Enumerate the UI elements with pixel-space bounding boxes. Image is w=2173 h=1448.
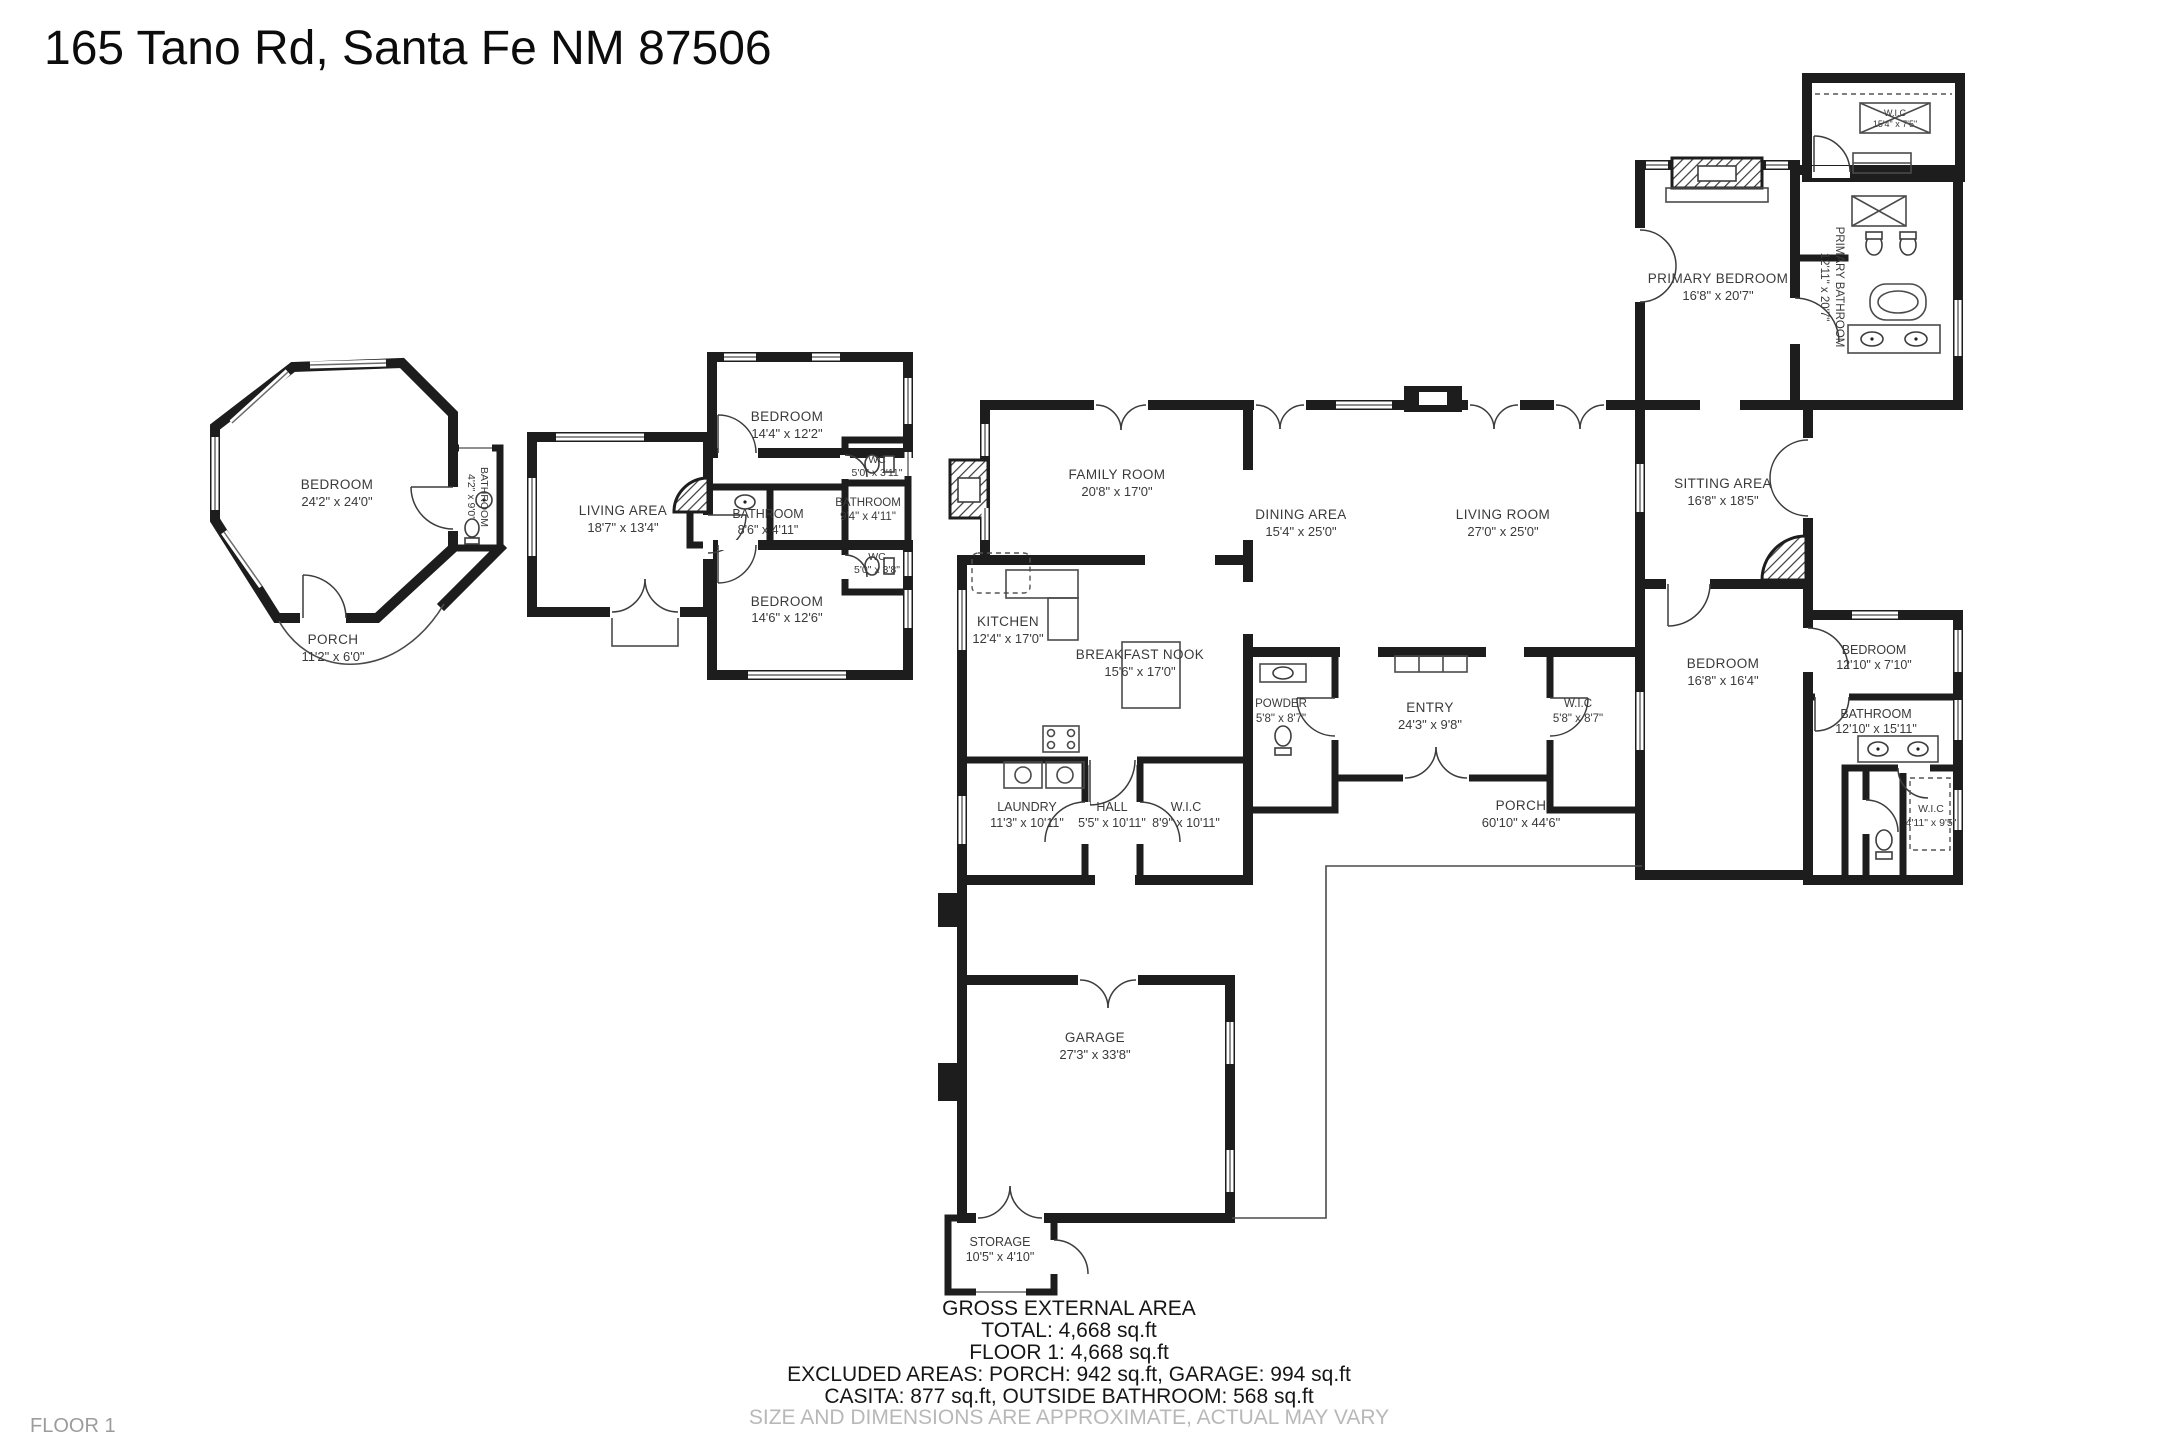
room-label-family-room: FAMILY ROOM xyxy=(1069,467,1166,482)
room-label-bedroom-right-big: BEDROOM xyxy=(1687,656,1760,671)
room-label-casita-bathroom: BATHROOM xyxy=(478,467,490,527)
sofa-icon xyxy=(1006,570,1078,640)
room-label-entry: ENTRY xyxy=(1406,700,1454,715)
room-dims-casita2-bathroom2: 9'4" x 4'11" xyxy=(840,511,896,523)
room-label-kitchen: KITCHEN xyxy=(977,614,1039,629)
bathtub-icon xyxy=(1870,284,1926,320)
room-dims-casita2-bedroom-top: 14'4" x 12'2" xyxy=(751,426,823,441)
room-label-bedroom-right-small: BEDROOM xyxy=(1842,643,1907,657)
room-dims-wc-top: 5'0" x 3'11" xyxy=(852,467,903,479)
vanity-sink-icon xyxy=(1260,664,1306,682)
room-dims-kitchen: 12'4" x 17'0" xyxy=(972,631,1044,646)
toilet-icon xyxy=(1876,830,1892,859)
room-dims-casita-bathroom: 4'2" x 9'0" xyxy=(465,474,477,520)
summary-casita: CASITA: 877 sq.ft, OUTSIDE BATHROOM: 568… xyxy=(824,1385,1314,1408)
octagon-casita: BEDROOM 24'2" x 24'0" PORCH 11'2" x 6'0"… xyxy=(215,363,500,664)
room-dims-wc-bottom: 5'0" x 3'8" xyxy=(854,564,900,576)
kiva-fireplace-icon xyxy=(1762,536,1806,580)
toilet-icon xyxy=(1866,232,1882,255)
room-dims-sitting-area: 16'8" x 18'5" xyxy=(1687,493,1759,508)
room-label-casita2-bathroom: BATHROOM xyxy=(732,507,803,521)
porch-outline xyxy=(1232,866,1642,1218)
room-label-breakfast-nook: BREAKFAST NOOK xyxy=(1076,647,1204,662)
room-label-casita-bedroom: BEDROOM xyxy=(301,477,374,492)
summary-excluded: EXCLUDED AREAS: PORCH: 942 sq.ft, GARAGE… xyxy=(787,1363,1351,1386)
room-label-casita-porch: PORCH xyxy=(308,632,359,647)
room-label-casita2-bedroom-top: BEDROOM xyxy=(751,409,824,424)
room-dims-family-room: 20'8" x 17'0" xyxy=(1081,484,1153,499)
room-label-wc-bottom: WC xyxy=(868,551,886,563)
washer-dryer-icon xyxy=(1004,762,1084,788)
floor-plan: 165 Tano Rd, Santa Fe NM 87506 BEDROOM 2… xyxy=(0,0,2173,1448)
room-dims-hall: 5'5" x 10'11" xyxy=(1078,816,1146,830)
room-label-primary-bathroom: PRIMARY BATHROOM xyxy=(1833,227,1845,348)
kiva-fireplace-icon xyxy=(674,478,708,512)
room-label-dining-area: DINING AREA xyxy=(1255,507,1346,522)
page-title: 165 Tano Rd, Santa Fe NM 87506 xyxy=(44,22,772,75)
main-house: FAMILY ROOM 20'8" x 17'0" DINING AREA 15… xyxy=(938,78,1960,1292)
room-label-wic-entry: W.I.C xyxy=(1564,698,1592,710)
room-label-porch-main: PORCH xyxy=(1496,798,1547,813)
toilet-icon xyxy=(465,519,479,544)
bidet-icon xyxy=(1900,232,1916,255)
room-label-living-area: LIVING AREA xyxy=(579,503,667,518)
room-label-hall: HALL xyxy=(1096,800,1127,814)
toilet-icon xyxy=(1275,726,1291,755)
room-dims-casita2-bedroom-bottom: 14'6" x 12'6" xyxy=(751,610,823,625)
room-dims-entry: 24'3" x 9'8" xyxy=(1398,717,1462,732)
shower-icon xyxy=(1852,196,1906,226)
floor-plan-page: 165 Tano Rd, Santa Fe NM 87506 BEDROOM 2… xyxy=(0,0,2173,1448)
room-label-casita2-bathroom2: BATHROOM xyxy=(835,497,901,509)
room-dims-wic-top: 15'4" x 7'5" xyxy=(1873,119,1917,129)
room-label-garage: GARAGE xyxy=(1065,1030,1125,1045)
room-label-wc-top: WC xyxy=(868,454,886,466)
room-dims-dining-area: 15'4" x 25'0" xyxy=(1265,524,1337,539)
room-dims-living-area: 18'7" x 13'4" xyxy=(587,520,659,535)
room-dims-living-room: 27'0" x 25'0" xyxy=(1467,524,1539,539)
room-label-wic-right: W.I.C xyxy=(1918,803,1944,815)
room-label-primary-bedroom: PRIMARY BEDROOM xyxy=(1648,271,1789,286)
room-dims-powder: 5'8" x 8'7" xyxy=(1256,713,1306,725)
floor-label: FLOOR 1 xyxy=(30,1415,116,1437)
room-label-wic-top: W.I.C xyxy=(1884,108,1906,118)
room-dims-bedroom-right-small: 12'10" x 7'10" xyxy=(1836,658,1912,672)
room-label-wic-hall: W.I.C xyxy=(1171,800,1202,814)
room-dims-primary-bedroom: 16'8" x 20'7" xyxy=(1682,288,1754,303)
console-table-icon xyxy=(1395,656,1467,672)
double-vanity-icon xyxy=(1858,736,1938,762)
room-label-storage: STORAGE xyxy=(970,1235,1031,1249)
summary-total: TOTAL: 4,668 sq.ft xyxy=(981,1319,1157,1342)
room-dims-laundry: 11'3" x 10'11" xyxy=(990,816,1064,830)
room-label-bathroom-right: BATHROOM xyxy=(1840,707,1911,721)
room-label-living-room: LIVING ROOM xyxy=(1456,507,1550,522)
summary-heading: GROSS EXTERNAL AREA xyxy=(942,1297,1196,1320)
summary-floor1: FLOOR 1: 4,668 sq.ft xyxy=(969,1341,1169,1364)
room-label-sitting-area: SITTING AREA xyxy=(1674,476,1772,491)
room-dims-casita-bedroom: 24'2" x 24'0" xyxy=(301,494,373,509)
room-dims-primary-bathroom: 12'11" x 20'7" xyxy=(1818,253,1830,322)
fireplace-icon xyxy=(1404,386,1462,412)
room-dims-storage: 10'5" x 4'10" xyxy=(966,1250,1035,1264)
room-dims-casita-porch: 11'2" x 6'0" xyxy=(301,649,364,664)
room-dims-wic-hall: 8'9" x 10'11" xyxy=(1152,816,1220,830)
room-dims-porch-main: 60'10" x 44'6" xyxy=(1482,815,1561,830)
guest-casita: LIVING AREA 18'7" x 13'4" BEDROOM 14'4" … xyxy=(532,357,908,675)
room-dims-breakfast-nook: 15'6" x 17'0" xyxy=(1104,664,1176,679)
fireplace-icon xyxy=(1666,158,1768,202)
outside-bathroom-building xyxy=(1815,94,1952,173)
room-label-laundry: LAUNDRY xyxy=(997,800,1057,814)
room-dims-bedroom-right-big: 16'8" x 16'4" xyxy=(1687,673,1759,688)
room-label-casita2-bedroom-bottom: BEDROOM xyxy=(751,594,824,609)
room-dims-garage: 27'3" x 33'8" xyxy=(1059,1047,1131,1062)
room-label-powder: POWDER xyxy=(1255,698,1307,710)
area-summary: GROSS EXTERNAL AREA TOTAL: 4,668 sq.ft F… xyxy=(749,1297,1389,1429)
room-dims-casita2-bathroom: 8'6" x 4'11" xyxy=(738,523,799,537)
summary-disclaimer: SIZE AND DIMENSIONS ARE APPROXIMATE, ACT… xyxy=(749,1406,1389,1429)
room-dims-wic-entry: 5'8" x 8'7" xyxy=(1553,713,1603,725)
double-vanity-icon xyxy=(1848,325,1940,353)
room-dims-bathroom-right: 12'10" x 15'11" xyxy=(1835,722,1917,736)
stove-icon xyxy=(1043,726,1079,752)
room-dims-wic-right: 4'11" x 9'5" xyxy=(1906,817,1957,829)
